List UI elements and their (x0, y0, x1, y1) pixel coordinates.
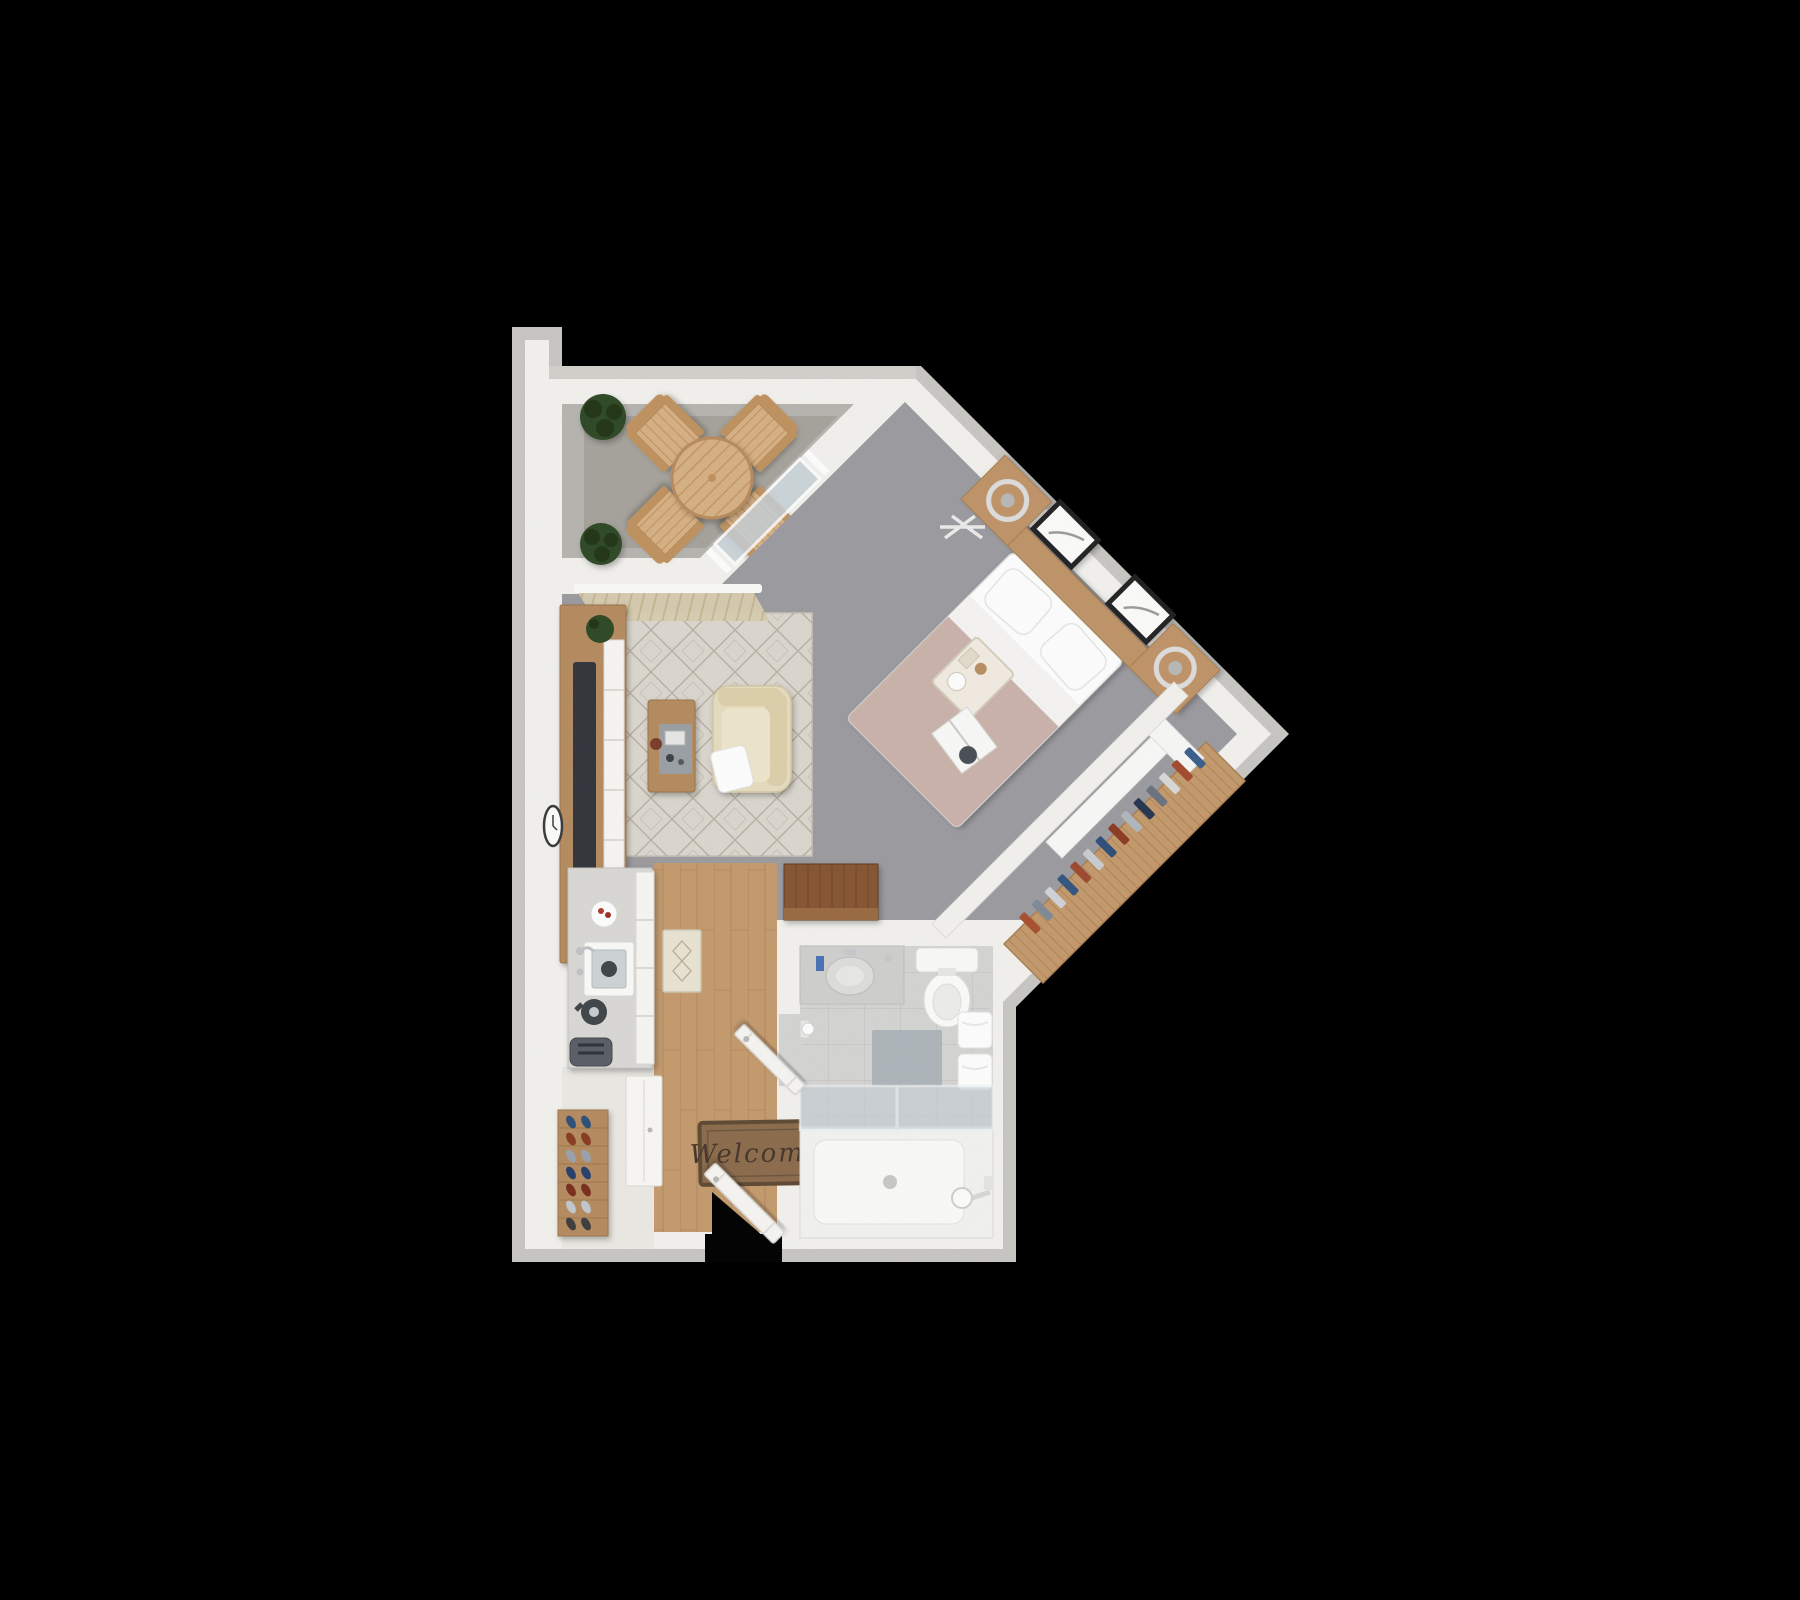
floorplan-screenshot: Welcome (0, 0, 1800, 1600)
floorplan-3d-render: Welcome (0, 0, 1800, 1600)
